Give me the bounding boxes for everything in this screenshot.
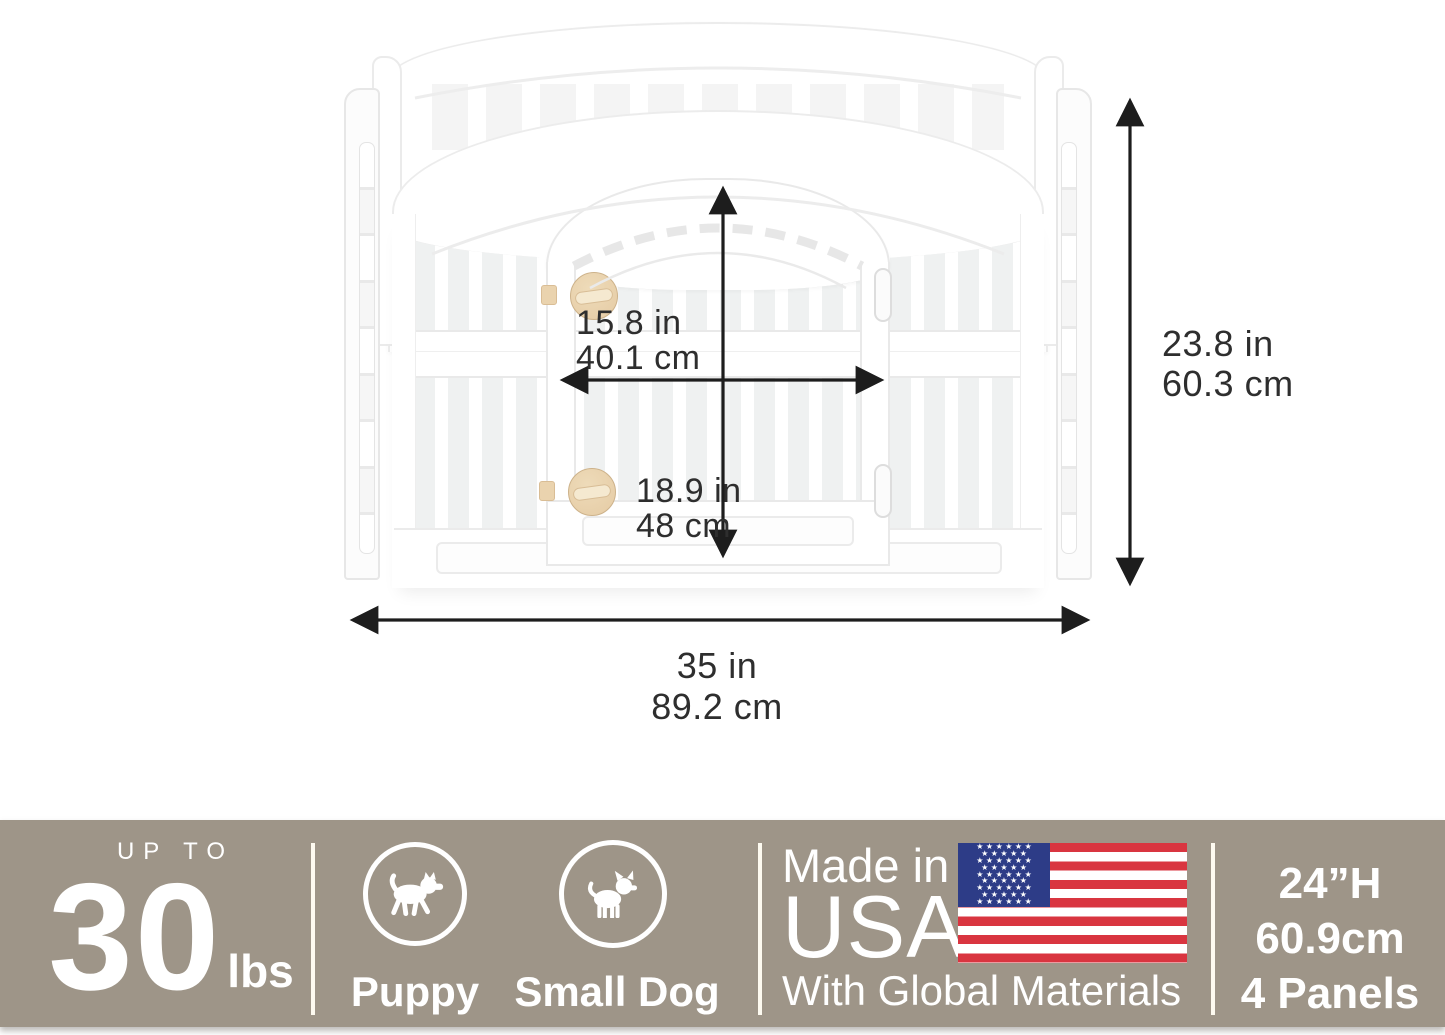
us-flag-icon: ★★★★★★★★★★★★★★★★★★★★★★★★★★★★★★★★★★★★★★★★… <box>958 843 1187 963</box>
door-knob-lower <box>568 468 616 516</box>
small-dog-label: Small Dog <box>503 968 731 1016</box>
panel-specs-block: 24”H 60.9cm 4 Panels <box>1222 856 1438 1021</box>
pen-side-panel-left <box>344 88 380 580</box>
feature-banner: UP TO 30 lbs <box>0 820 1445 1027</box>
dimension-pen-width: 35 in 89.2 cm <box>597 645 837 727</box>
puppy-circle <box>363 842 467 946</box>
small-dog-icon <box>584 870 642 919</box>
dimension-value-inches: 23.8 in <box>1162 324 1294 364</box>
dimension-value-inches: 15.8 in <box>576 306 700 341</box>
knob-slot <box>574 287 613 305</box>
pen-mid-rail <box>414 353 1022 378</box>
flag-star-row: ★★★★★★ <box>958 899 1050 906</box>
dimension-value-metric: 48 cm <box>636 509 742 544</box>
product-spec-image: 15.8 in 40.1 cm 18.9 in 48 cm 23.8 in 60… <box>0 0 1445 1035</box>
door-hinge-lower <box>874 464 892 518</box>
pen-side-panel-right <box>1056 88 1092 580</box>
dimension-value-inches: 35 in <box>597 645 837 686</box>
banner-divider <box>311 843 315 1015</box>
knob-slot <box>572 483 611 501</box>
banner-divider <box>758 843 762 1015</box>
dimension-value-metric: 40.1 cm <box>576 341 700 376</box>
dimension-pen-height: 23.8 in 60.3 cm <box>1162 324 1294 404</box>
pen-mid-rail <box>414 330 1022 352</box>
dimension-door-height: 18.9 in 48 cm <box>636 474 742 544</box>
dimension-door-width: 15.8 in 40.1 cm <box>576 306 700 376</box>
spec-panel-count: 4 Panels <box>1222 966 1438 1021</box>
door-latch-plate <box>539 481 555 501</box>
weight-limit-block: UP TO 30 lbs <box>45 838 297 1008</box>
dimension-value-metric: 60.3 cm <box>1162 364 1294 404</box>
banner-divider <box>1211 843 1215 1015</box>
dimension-value-metric: 89.2 cm <box>597 686 837 727</box>
weight-limit-value: 30 <box>48 868 221 1008</box>
dimension-value-inches: 18.9 in <box>636 474 742 509</box>
door-latch-plate <box>541 285 557 305</box>
materials-line: With Global Materials <box>782 968 1181 1014</box>
spec-height-inches: 24”H <box>1222 856 1438 911</box>
us-flag-canton: ★★★★★★★★★★★★★★★★★★★★★★★★★★★★★★★★★★★★★★★★… <box>958 843 1050 907</box>
door-hinge-upper <box>874 268 892 322</box>
spec-height-metric: 60.9cm <box>1222 911 1438 966</box>
puppy-label: Puppy <box>330 968 500 1016</box>
puppy-icon <box>384 871 446 918</box>
small-dog-circle <box>559 840 667 948</box>
weight-limit-unit: lbs <box>227 944 293 998</box>
